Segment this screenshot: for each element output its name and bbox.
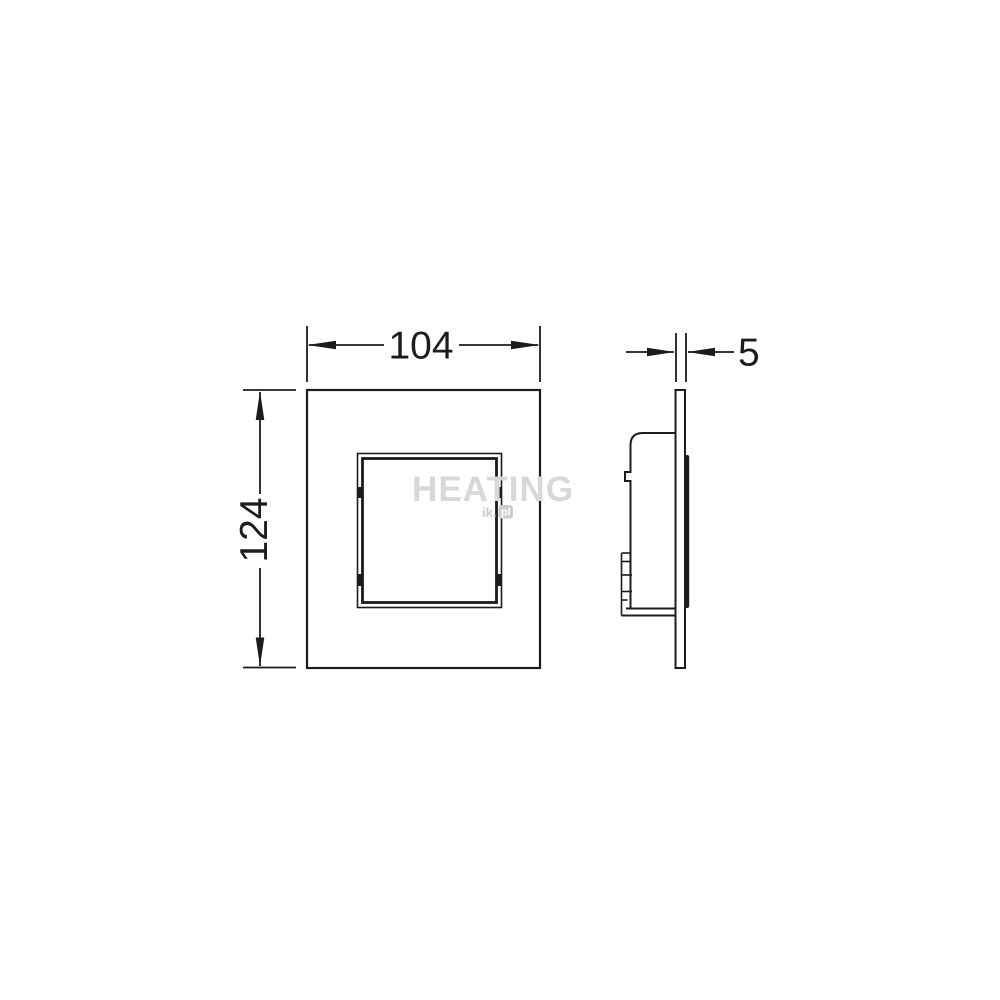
side-plate-outline [676, 390, 686, 668]
side-button-bump [685, 455, 689, 608]
front-view [307, 390, 540, 668]
watermark-badge-text: pl [501, 507, 511, 519]
watermark-title: HEATING [412, 470, 574, 509]
button-clip-tick-right-lower [497, 574, 502, 586]
thickness-dimension-value: 5 [738, 332, 760, 375]
height-dimension-value: 124 [233, 497, 276, 562]
watermark-site-prefix: ik. [482, 505, 496, 520]
button-clip-tick-left-upper [358, 487, 363, 498]
drawing-canvas: 104 124 5 HEATING ik. pl [0, 0, 1000, 1000]
technical-drawing-svg: 104 124 5 HEATING ik. pl [0, 0, 1000, 1000]
button-clip-tick-left-lower [358, 574, 363, 586]
width-dimension-value: 104 [388, 325, 453, 368]
